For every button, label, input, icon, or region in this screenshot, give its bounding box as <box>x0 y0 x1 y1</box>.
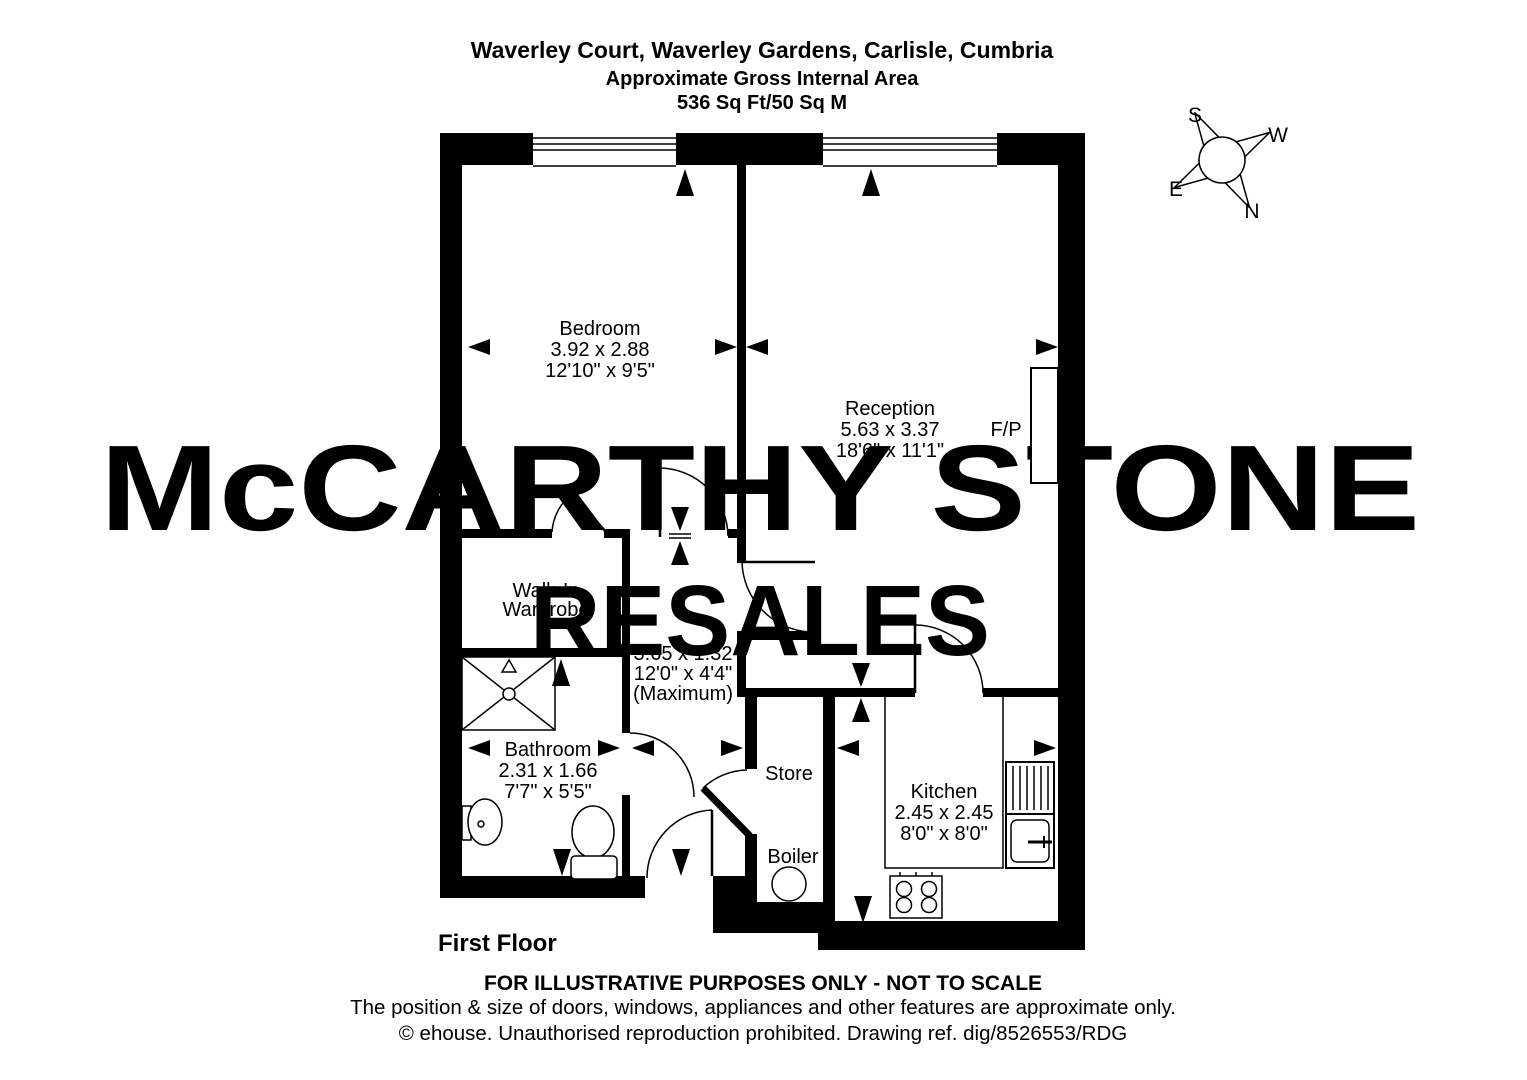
kitchen-metric: 2.45 x 2.45 <box>895 802 994 824</box>
hall-width-arrow-right <box>721 740 743 756</box>
basin-drain <box>478 821 484 827</box>
boiler-label: Boiler <box>767 846 818 868</box>
kitchen-width-arrow-right <box>1034 740 1056 756</box>
bathroom-depth-arrow-down <box>553 849 571 876</box>
hall-imperial: 12'0" x 4'4" <box>634 663 733 685</box>
reception-width-arrow-right <box>1036 339 1058 355</box>
bedroom-imperial: 12'10" x 9'5" <box>545 360 655 382</box>
area-value: 536 Sq Ft/50 Sq M <box>677 92 847 114</box>
bathroom-metric: 2.31 x 1.66 <box>499 760 598 782</box>
bathroom-width-arrow-right <box>598 740 620 756</box>
compass-label-north: N <box>1244 200 1259 223</box>
wall-left <box>440 133 462 898</box>
bedroom-depth-arrow-up <box>676 169 694 196</box>
bathroom-name: Bathroom <box>505 739 592 761</box>
compass-label-south: S <box>1188 104 1202 127</box>
hall-label: 3.65 x 1.32 12'0" x 4'4" (Maximum) <box>633 643 733 705</box>
bedroom-name: Bedroom <box>559 318 640 340</box>
hall-metric: 3.65 x 1.32 <box>634 643 733 665</box>
wall-store-kitchen-divider <box>823 692 835 935</box>
toilet-bowl <box>572 806 614 858</box>
compass-label-east: E <box>1169 178 1183 201</box>
hob-ring <box>922 898 937 913</box>
floorplan-page: McCARTHY STONE RESALES <box>0 0 1527 1080</box>
area-subtitle: Approximate Gross Internal Area <box>606 68 920 90</box>
compass-label-west: W <box>1268 124 1288 147</box>
shower-drain <box>503 688 515 700</box>
wall-reception-door-vert <box>737 631 746 697</box>
basin <box>468 799 502 845</box>
wardrobe-label: Walk-In Wardrobe <box>502 580 589 621</box>
kitchen-depth-arrow-down <box>854 896 872 923</box>
fireplace <box>1031 368 1058 483</box>
bedroom-label: Bedroom 3.92 x 2.88 12'10" x 9'5" <box>545 318 655 382</box>
bedroom-width-arrow-left <box>468 339 490 355</box>
watermark-secondary: RESALES <box>530 565 990 677</box>
reception-depth-arrow-up <box>862 169 880 196</box>
footer-copyright: © ehouse. Unauthorised reproduction proh… <box>399 1022 1127 1045</box>
boiler-tank <box>772 867 806 901</box>
hob-ring <box>922 882 937 897</box>
store-door-leaf <box>703 788 750 836</box>
reception-name: Reception <box>845 398 935 420</box>
wall-bedroom-bottom-a <box>440 529 552 538</box>
store-door-arc <box>703 770 747 788</box>
header: Waverley Court, Waverley Gardens, Carlis… <box>471 37 1054 114</box>
bathroom-width-arrow-left <box>468 740 490 756</box>
reception-width-arrow-left <box>746 339 768 355</box>
hall-entry-arrow-down <box>672 849 690 876</box>
wall-bedroom-reception-divider <box>737 165 746 563</box>
floorplan-drawing: McCARTHY STONE RESALES <box>0 0 1527 1080</box>
bathroom-label: Bathroom 2.31 x 1.66 7'7" x 5'5" <box>499 739 598 803</box>
wall-kitchen-bottom <box>818 921 1085 950</box>
wall-wardrobe-bottom <box>440 648 630 657</box>
wardrobe-name-line2: Wardrobe <box>502 599 589 621</box>
hob-ring <box>897 882 912 897</box>
store-label: Store <box>765 763 813 785</box>
compass-circle <box>1191 129 1254 192</box>
wall-reception-door-horiz <box>737 631 812 640</box>
watermark-primary: McCARTHY STONE <box>100 420 1420 556</box>
bathroom-door-arc <box>630 733 694 797</box>
footer: FOR ILLUSTRATIVE PURPOSES ONLY - NOT TO … <box>350 972 1176 1045</box>
bedroom-width-arrow-right <box>715 339 737 355</box>
kitchen-width-arrow-left <box>837 740 859 756</box>
hall-width-arrow-left <box>632 740 654 756</box>
wall-store-left-upper <box>745 692 757 769</box>
page-title: Waverley Court, Waverley Gardens, Carlis… <box>471 37 1054 63</box>
wall-right <box>1058 133 1085 950</box>
reception-label: Reception 5.63 x 3.37 18'6" x 11'1" <box>836 398 944 462</box>
wall-hall-left-upper <box>622 529 630 733</box>
wall-hall-left-lower <box>622 795 630 878</box>
toilet-cistern <box>571 856 617 879</box>
wall-kitchen-top <box>983 688 1058 697</box>
wall-bedroom-bottom-stub <box>728 529 737 538</box>
kitchen-label: Kitchen 2.45 x 2.45 8'0" x 8'0" <box>895 781 994 845</box>
compass-rose-icon: S W E N <box>1147 85 1297 235</box>
footer-disclaimer: FOR ILLUSTRATIVE PURPOSES ONLY - NOT TO … <box>484 972 1042 995</box>
reception-imperial: 18'6" x 11'1" <box>836 440 944 462</box>
floor-label: First Floor <box>438 930 557 957</box>
kitchen-name: Kitchen <box>911 781 978 803</box>
bedroom-metric: 3.92 x 2.88 <box>551 339 650 361</box>
hall-note: (Maximum) <box>633 683 733 705</box>
bathroom-imperial: 7'7" x 5'5" <box>504 781 591 803</box>
fireplace-label: F/P <box>990 419 1021 441</box>
reception-metric: 5.63 x 3.37 <box>841 419 940 441</box>
kitchen-imperial: 8'0" x 8'0" <box>900 823 987 845</box>
kitchen-depth-arrow-up <box>852 698 870 722</box>
hob <box>890 876 942 918</box>
footer-note: The position & size of doors, windows, a… <box>350 996 1176 1019</box>
hob-ring <box>897 898 912 913</box>
